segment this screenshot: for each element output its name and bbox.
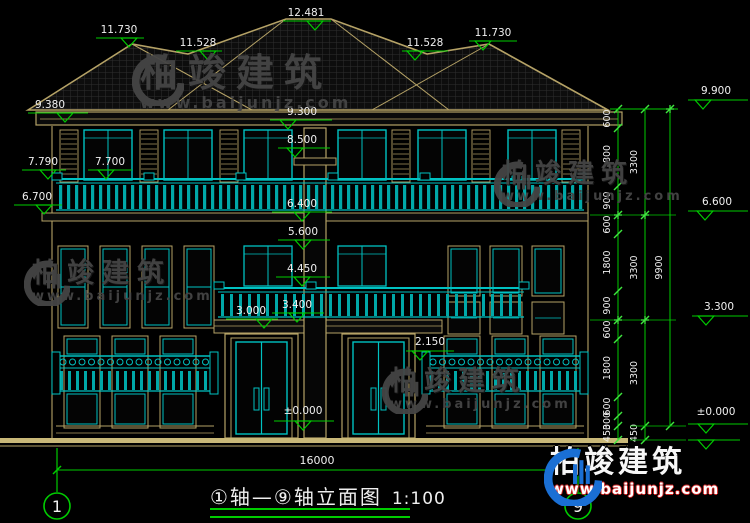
svg-text:9.900: 9.900: [701, 85, 731, 97]
trellis-band: [52, 352, 218, 394]
elevation-drawing-canvas: 1916000600180090060018009006001800600300…: [0, 0, 750, 523]
dimension-chain-right: 6001800900600180090060018006003004503300…: [590, 105, 686, 444]
svg-text:11.730: 11.730: [475, 27, 512, 39]
svg-text:±0.000: ±0.000: [697, 406, 736, 418]
svg-text:6.600: 6.600: [702, 196, 732, 208]
svg-text:5.600: 5.600: [288, 226, 318, 238]
svg-text:900: 900: [602, 191, 613, 209]
dimension-total-width: 16000: [53, 454, 582, 474]
elevation-marker: ±0.000: [688, 406, 748, 433]
axis-circle-9: 9: [565, 493, 591, 519]
ground-level-marker: [688, 440, 740, 449]
svg-text:450: 450: [629, 424, 640, 442]
elevation-marker: 3.300: [692, 301, 748, 325]
trellis-band: [422, 352, 588, 394]
svg-text:16000: 16000: [300, 454, 335, 467]
svg-text:3300: 3300: [629, 150, 640, 174]
svg-text:600: 600: [602, 109, 613, 127]
svg-text:7.700: 7.700: [95, 156, 125, 168]
elevation-marker: 11.730: [96, 24, 144, 47]
svg-text:450: 450: [602, 424, 613, 442]
svg-text:1800: 1800: [602, 250, 613, 274]
svg-text:2.150: 2.150: [415, 336, 445, 348]
svg-text:9: 9: [573, 497, 583, 516]
svg-text:±0.000: ±0.000: [284, 405, 323, 417]
svg-text:3.300: 3.300: [704, 301, 734, 313]
svg-text:3300: 3300: [629, 255, 640, 279]
svg-text:4.450: 4.450: [287, 263, 317, 275]
svg-text:3300: 3300: [629, 361, 640, 385]
elevation-marker: 6.600: [688, 196, 748, 220]
svg-text:9.300: 9.300: [287, 106, 317, 118]
svg-text:600: 600: [602, 215, 613, 233]
svg-text:11.730: 11.730: [101, 24, 138, 36]
svg-text:9.380: 9.380: [35, 99, 65, 111]
svg-text:9900: 9900: [654, 255, 665, 279]
svg-text:600: 600: [602, 320, 613, 338]
svg-text:8.500: 8.500: [287, 134, 317, 146]
svg-text:6.700: 6.700: [22, 191, 52, 203]
svg-text:7.790: 7.790: [28, 156, 58, 168]
svg-text:11.528: 11.528: [180, 37, 217, 49]
elevation-marker: 6.700: [14, 191, 62, 214]
svg-text:1: 1: [52, 497, 62, 516]
svg-text:900: 900: [602, 296, 613, 314]
axis-circle-1: 1: [44, 493, 70, 519]
svg-text:11.528: 11.528: [407, 37, 444, 49]
entrance-door-left: [225, 334, 298, 438]
svg-text:1800: 1800: [602, 356, 613, 380]
eave-band: [36, 112, 622, 125]
svg-text:3.000: 3.000: [236, 305, 266, 317]
cad-elevation-drawing: 1916000600180090060018009006001800600300…: [0, 0, 750, 523]
entrance-door-right: [342, 334, 415, 438]
svg-text:3.400: 3.400: [282, 299, 312, 311]
elevation-marker: 9.900: [688, 85, 748, 109]
svg-text:12.481: 12.481: [288, 7, 325, 19]
svg-text:6.400: 6.400: [287, 198, 317, 210]
svg-text:1800: 1800: [602, 145, 613, 169]
